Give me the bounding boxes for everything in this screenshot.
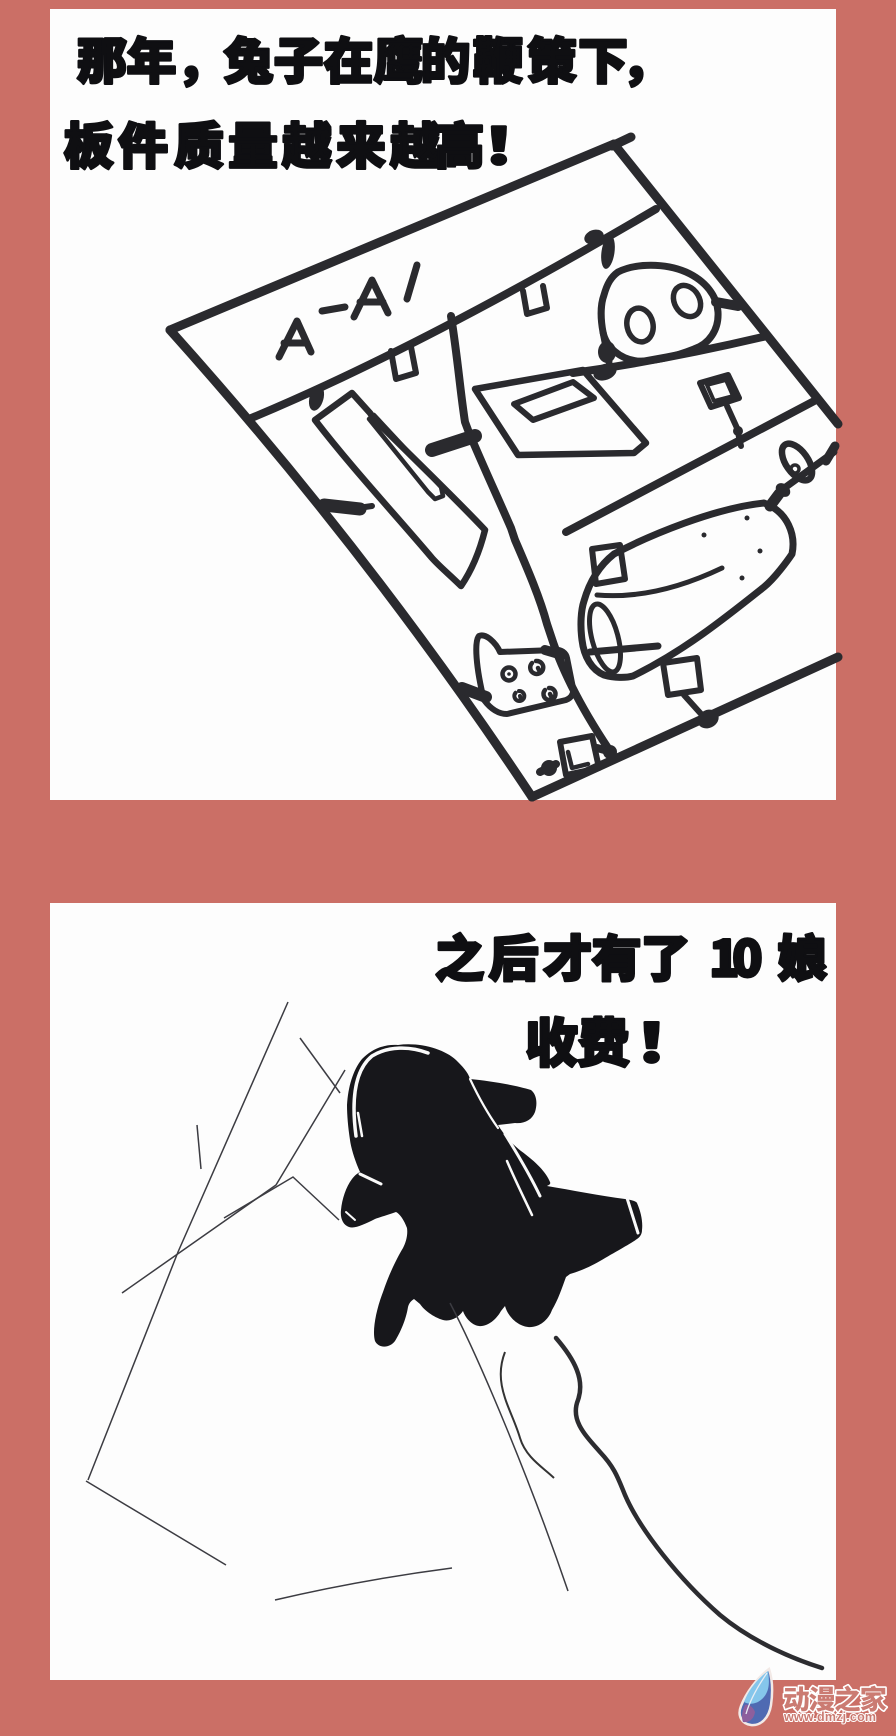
svg-text:www.dmzj.com: www.dmzj.com	[783, 1710, 876, 1724]
